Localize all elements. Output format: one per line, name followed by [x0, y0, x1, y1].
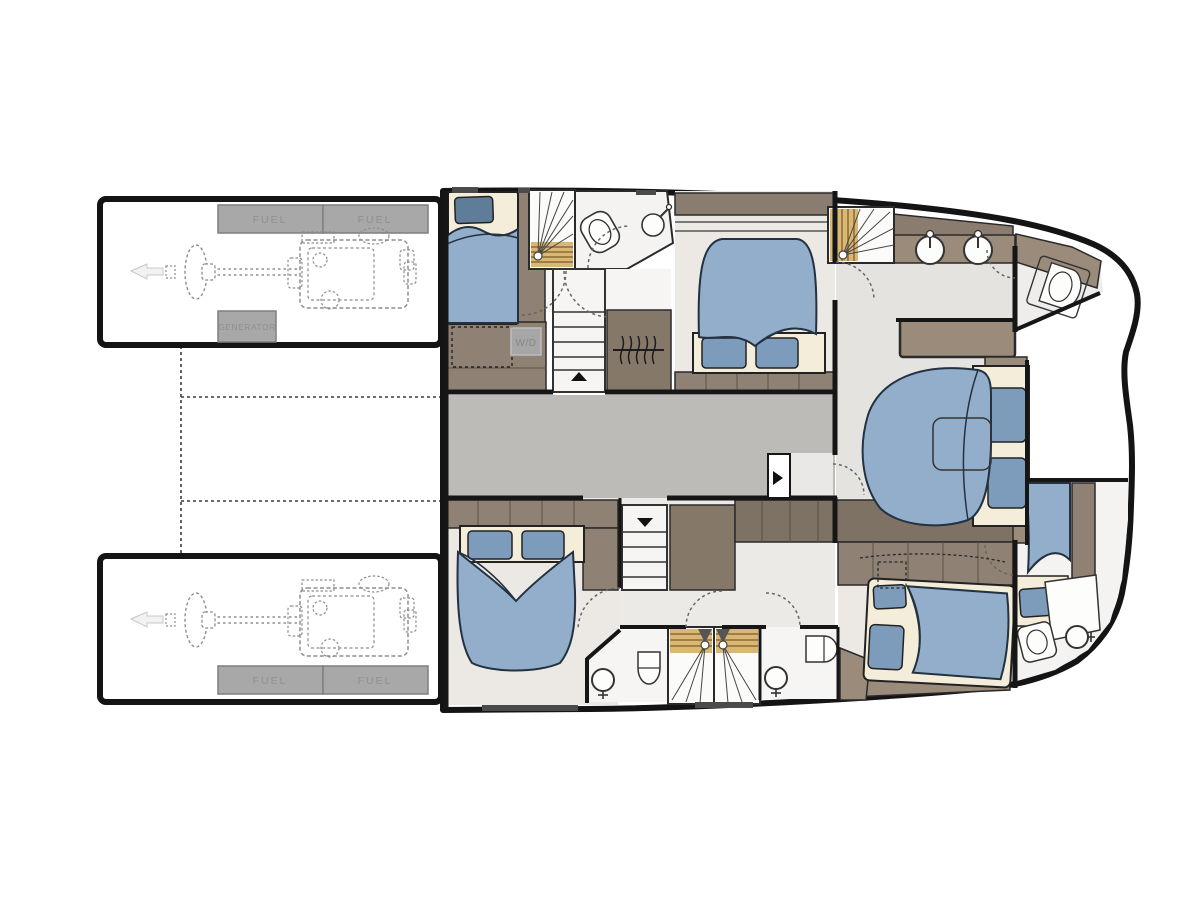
- sink-icon: [1066, 626, 1088, 648]
- stairs-down-mid-down: [622, 505, 667, 590]
- fuel-label: FUEL: [253, 675, 288, 687]
- bed-stbd-mid: [458, 526, 584, 671]
- bed-port-aft: [447, 192, 518, 324]
- yacht-floorplan: W/D FUEL FUEL GENERATOR FUEL FUEL: [0, 0, 1200, 899]
- starboard-engine-room: FUEL FUEL: [100, 556, 441, 702]
- toilet-icon: [806, 636, 837, 662]
- fuel-label: FUEL: [358, 675, 393, 687]
- sliding-door: [768, 454, 790, 498]
- toilet-icon: [638, 652, 660, 684]
- stairs-up-stbd-curved: [828, 207, 894, 263]
- stairs-up-port-curved: [529, 190, 575, 269]
- washer-dryer-label: W/D: [516, 338, 537, 349]
- generator-label: GENERATOR: [218, 322, 276, 332]
- bed-port-fwd: [693, 239, 825, 373]
- port-engine-room: FUEL FUEL GENERATOR: [100, 199, 441, 345]
- stairs-down-mid-up: [553, 269, 605, 392]
- fuel-label: FUEL: [358, 214, 393, 226]
- sink-icon: [592, 669, 614, 691]
- stairs-twin-aft: [668, 627, 760, 704]
- bridgedeck-lines: [181, 346, 441, 556]
- floorplan-svg: W/D FUEL FUEL GENERATOR FUEL FUEL: [0, 0, 1200, 899]
- sink-icon: [765, 667, 787, 689]
- bed-stbd-aft: [863, 578, 1015, 688]
- bed-master: [863, 366, 1029, 526]
- fuel-label: FUEL: [253, 214, 288, 226]
